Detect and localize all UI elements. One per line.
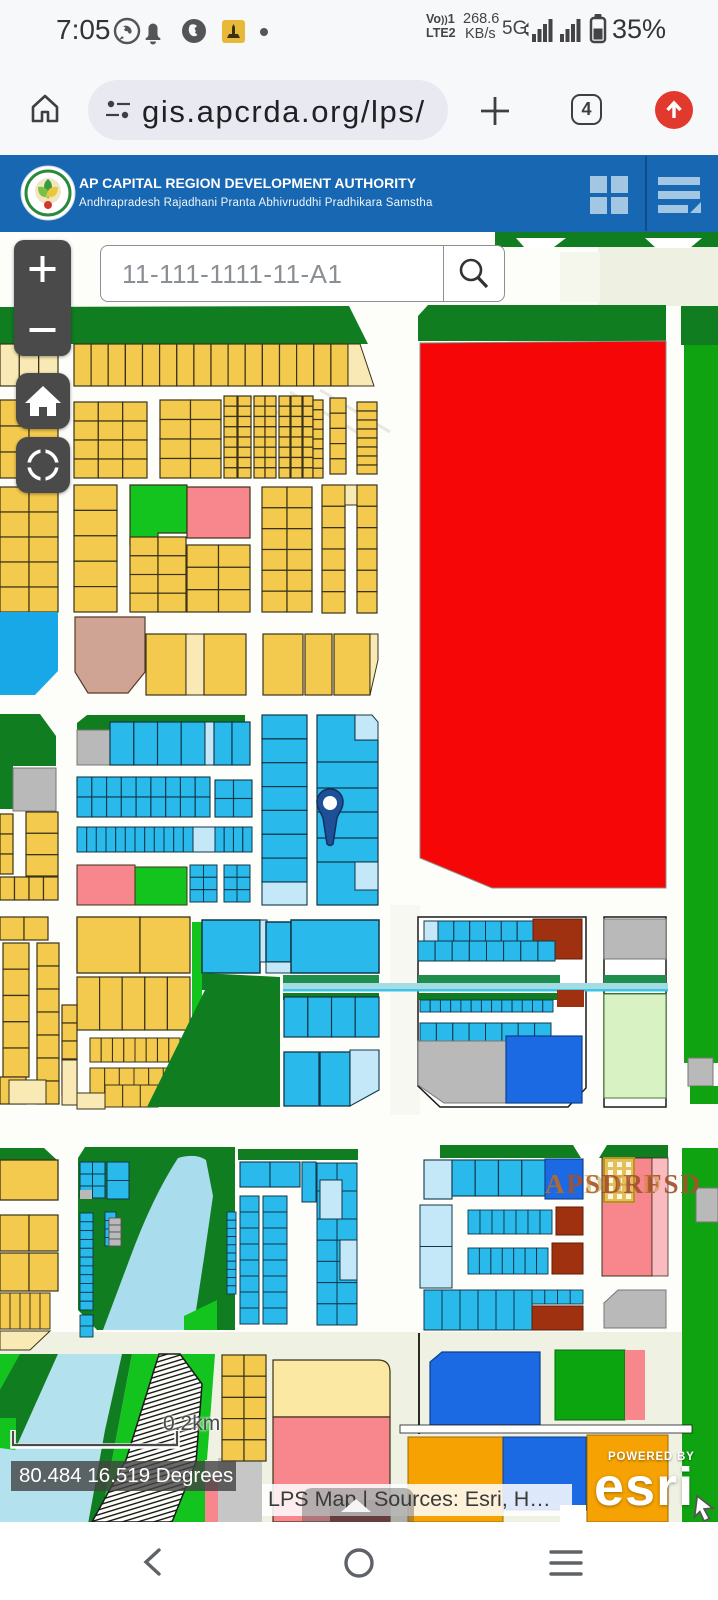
svg-text:A D F D: A D F D <box>545 1169 663 1199</box>
